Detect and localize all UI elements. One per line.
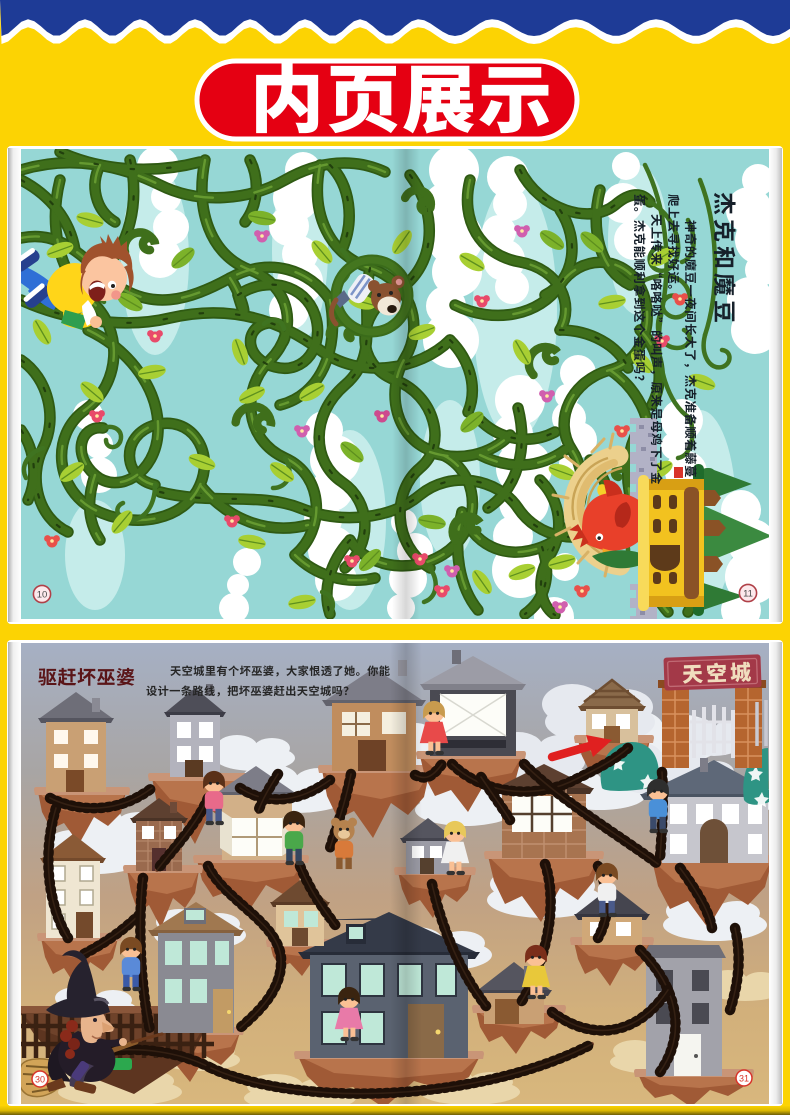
svg-text:31: 31 — [739, 1074, 749, 1084]
svg-text:10: 10 — [37, 590, 48, 601]
svg-text:30: 30 — [35, 1075, 45, 1085]
svg-text:11: 11 — [743, 589, 753, 600]
